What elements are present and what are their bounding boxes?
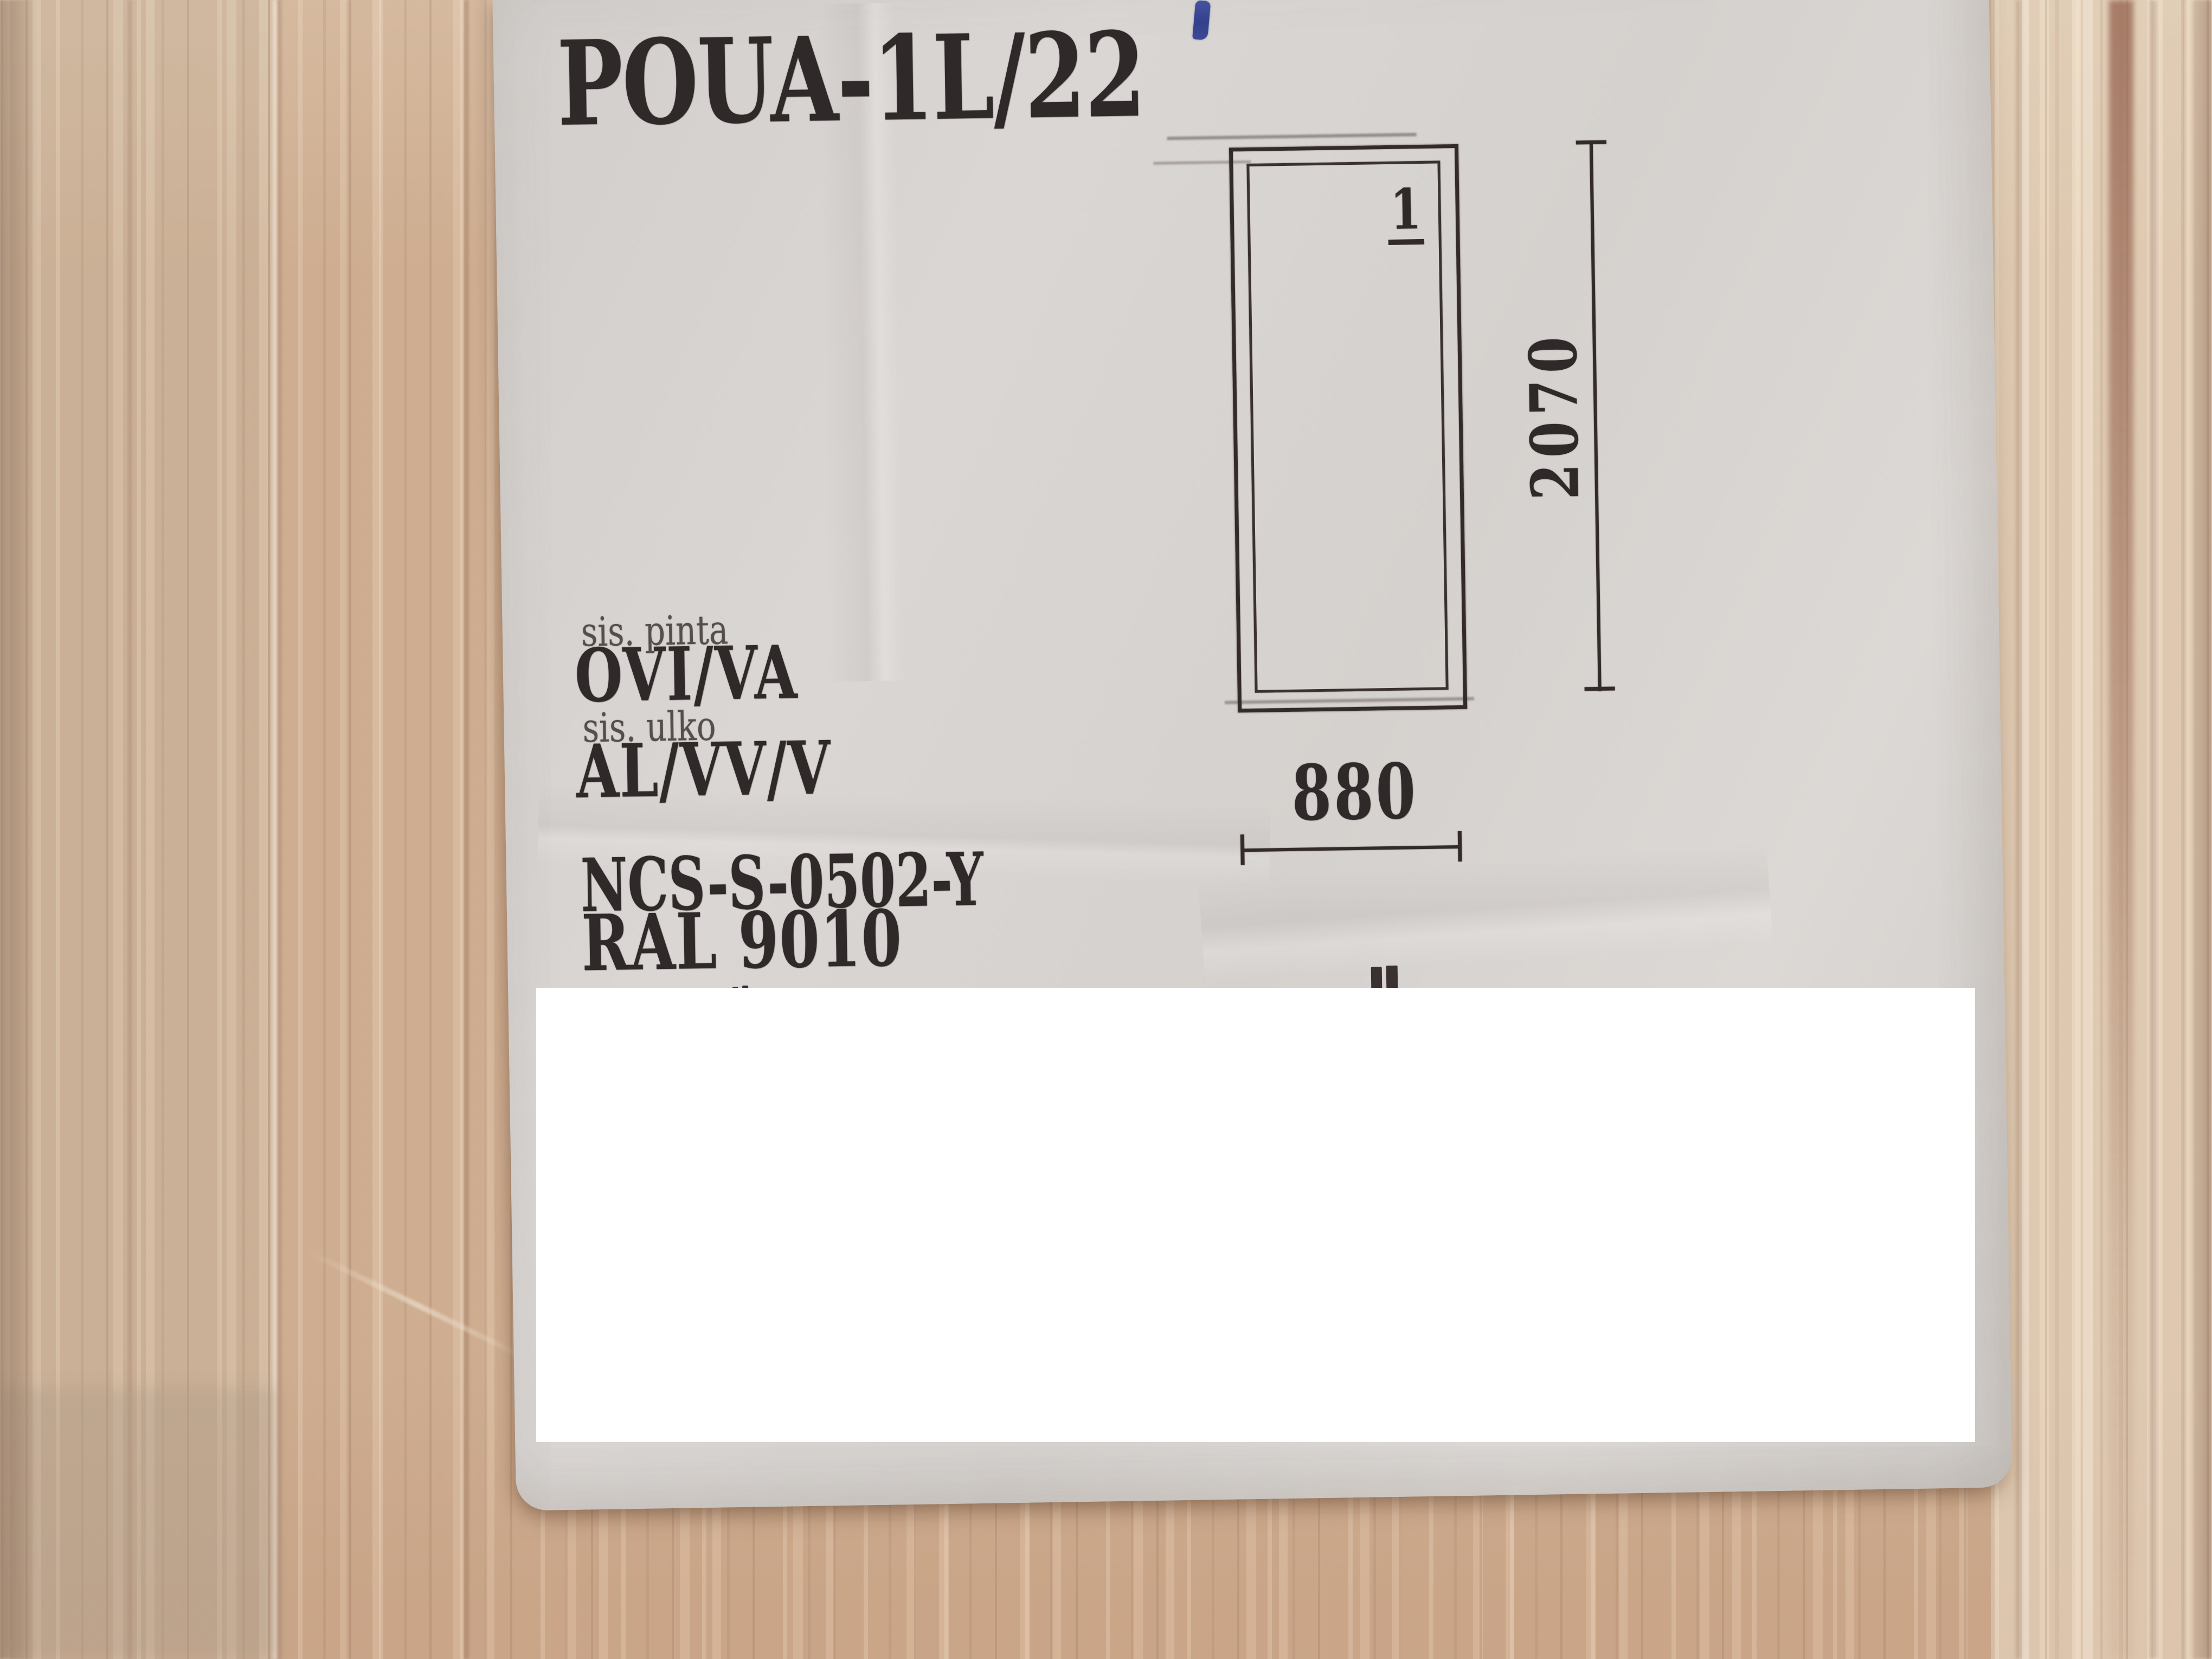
wood-grain-streak [2016,0,2021,1659]
wood-grain-streak [347,0,350,1659]
wood-grain-streak [2109,0,2133,1659]
paper-crease [1198,842,1773,983]
surface-outer-value: AL/VV/V [576,731,832,808]
height-dimension-value: 2070 [1521,330,1589,500]
partially-covered-text [1371,967,1382,988]
stamp-smear [1167,133,1417,140]
dimension-tick [1458,831,1462,861]
width-dimension-line [1242,845,1461,852]
diagram-panel-number: 1 [1387,182,1424,245]
wood-background: POUA-1L/22 1 2070 880 sis. pinta OVI/VA … [0,0,2212,1659]
wood-grain-streak [2150,0,2157,1659]
wood-shading-patch [0,1388,279,1659]
redaction-box [536,988,1975,1442]
partially-covered-text [1386,966,1398,988]
blue-pen-check-mark [1192,0,1211,40]
wood-grain-streak [2191,0,2212,1659]
dimension-tick [1240,834,1245,865]
ral-color-code: RAL 9010 [581,900,903,982]
width-dimension-value: 880 [1291,754,1419,832]
product-code: POUA-1L/22 [556,16,1146,142]
wood-grain-streak [464,0,469,1659]
wood-edge-shadow [0,0,38,1659]
dimension-tick [1576,140,1606,145]
surface-inner-value: OVI/VA [574,635,799,712]
dimension-tick [1585,686,1615,691]
